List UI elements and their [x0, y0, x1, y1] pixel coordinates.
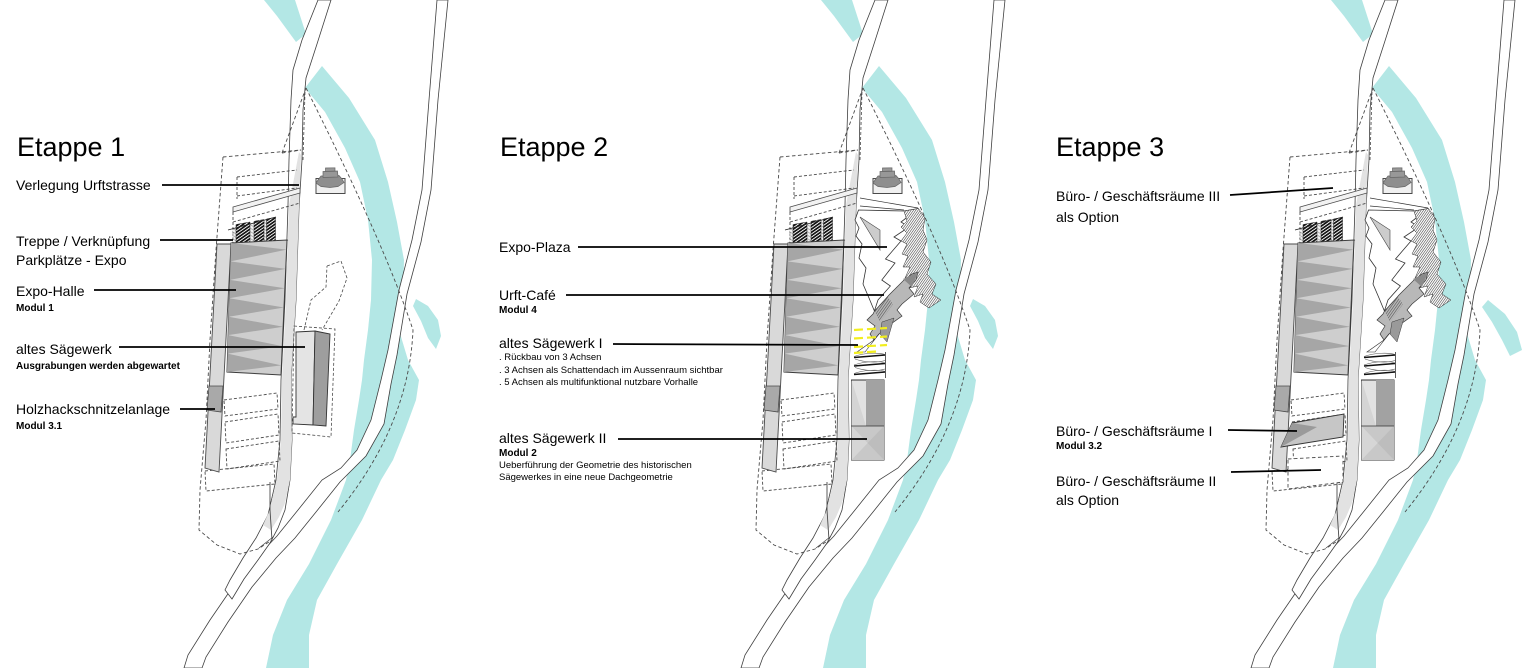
- svg-text:Expo-Halle: Expo-Halle: [16, 283, 85, 299]
- svg-text:Expo-Plaza: Expo-Plaza: [499, 239, 571, 255]
- svg-text:Modul 4: Modul 4: [499, 305, 537, 316]
- svg-text:. 3 Achsen als Schattendach im: . 3 Achsen als Schattendach im Aussenrau…: [499, 365, 723, 376]
- svg-text:Sägewerkes in eine neue Dachge: Sägewerkes in eine neue Dachgeometrie: [499, 472, 673, 483]
- svg-text:. Rückbau von 3 Achsen: . Rückbau von 3 Achsen: [499, 352, 601, 363]
- svg-text:Modul 3.1: Modul 3.1: [16, 421, 63, 432]
- svg-text:Modul 1: Modul 1: [16, 303, 54, 314]
- svg-text:Holzhackschnitzelanlage: Holzhackschnitzelanlage: [16, 401, 170, 417]
- svg-text:Urft-Café: Urft-Café: [499, 287, 556, 303]
- svg-text:Parkplätze - Expo: Parkplätze - Expo: [16, 252, 127, 268]
- svg-text:Ueberführung der Geometrie des: Ueberführung der Geometrie des historisc…: [499, 460, 692, 471]
- svg-text:Treppe / Verknüpfung: Treppe / Verknüpfung: [16, 233, 150, 249]
- svg-text:Etappe 2: Etappe 2: [500, 132, 608, 162]
- svg-text:altes Sägewerk: altes Sägewerk: [16, 341, 113, 357]
- svg-text:Modul 2: Modul 2: [499, 448, 537, 459]
- svg-text:Büro- / Geschäftsräume II: Büro- / Geschäftsräume II: [1056, 473, 1216, 489]
- svg-text:altes Sägewerk I: altes Sägewerk I: [499, 335, 603, 351]
- svg-text:. 5 Achsen als multifunktional: . 5 Achsen als multifunktional nutzbare …: [499, 377, 698, 388]
- svg-text:als Option: als Option: [1056, 492, 1119, 508]
- svg-text:Verlegung Urftstrasse: Verlegung Urftstrasse: [16, 177, 151, 193]
- svg-text:Modul 3.2: Modul 3.2: [1056, 441, 1103, 452]
- svg-text:altes Sägewerk II: altes Sägewerk II: [499, 430, 606, 446]
- svg-text:Büro- / Geschäftsräume III: Büro- / Geschäftsräume III: [1056, 188, 1220, 204]
- svg-text:Etappe 1: Etappe 1: [17, 132, 125, 162]
- svg-text:als Option: als Option: [1056, 209, 1119, 225]
- svg-text:Büro- / Geschäftsräume I: Büro- / Geschäftsräume I: [1056, 423, 1212, 439]
- svg-text:Etappe 3: Etappe 3: [1056, 132, 1164, 162]
- svg-text:Ausgrabungen werden abgewartet: Ausgrabungen werden abgewartet: [16, 361, 181, 372]
